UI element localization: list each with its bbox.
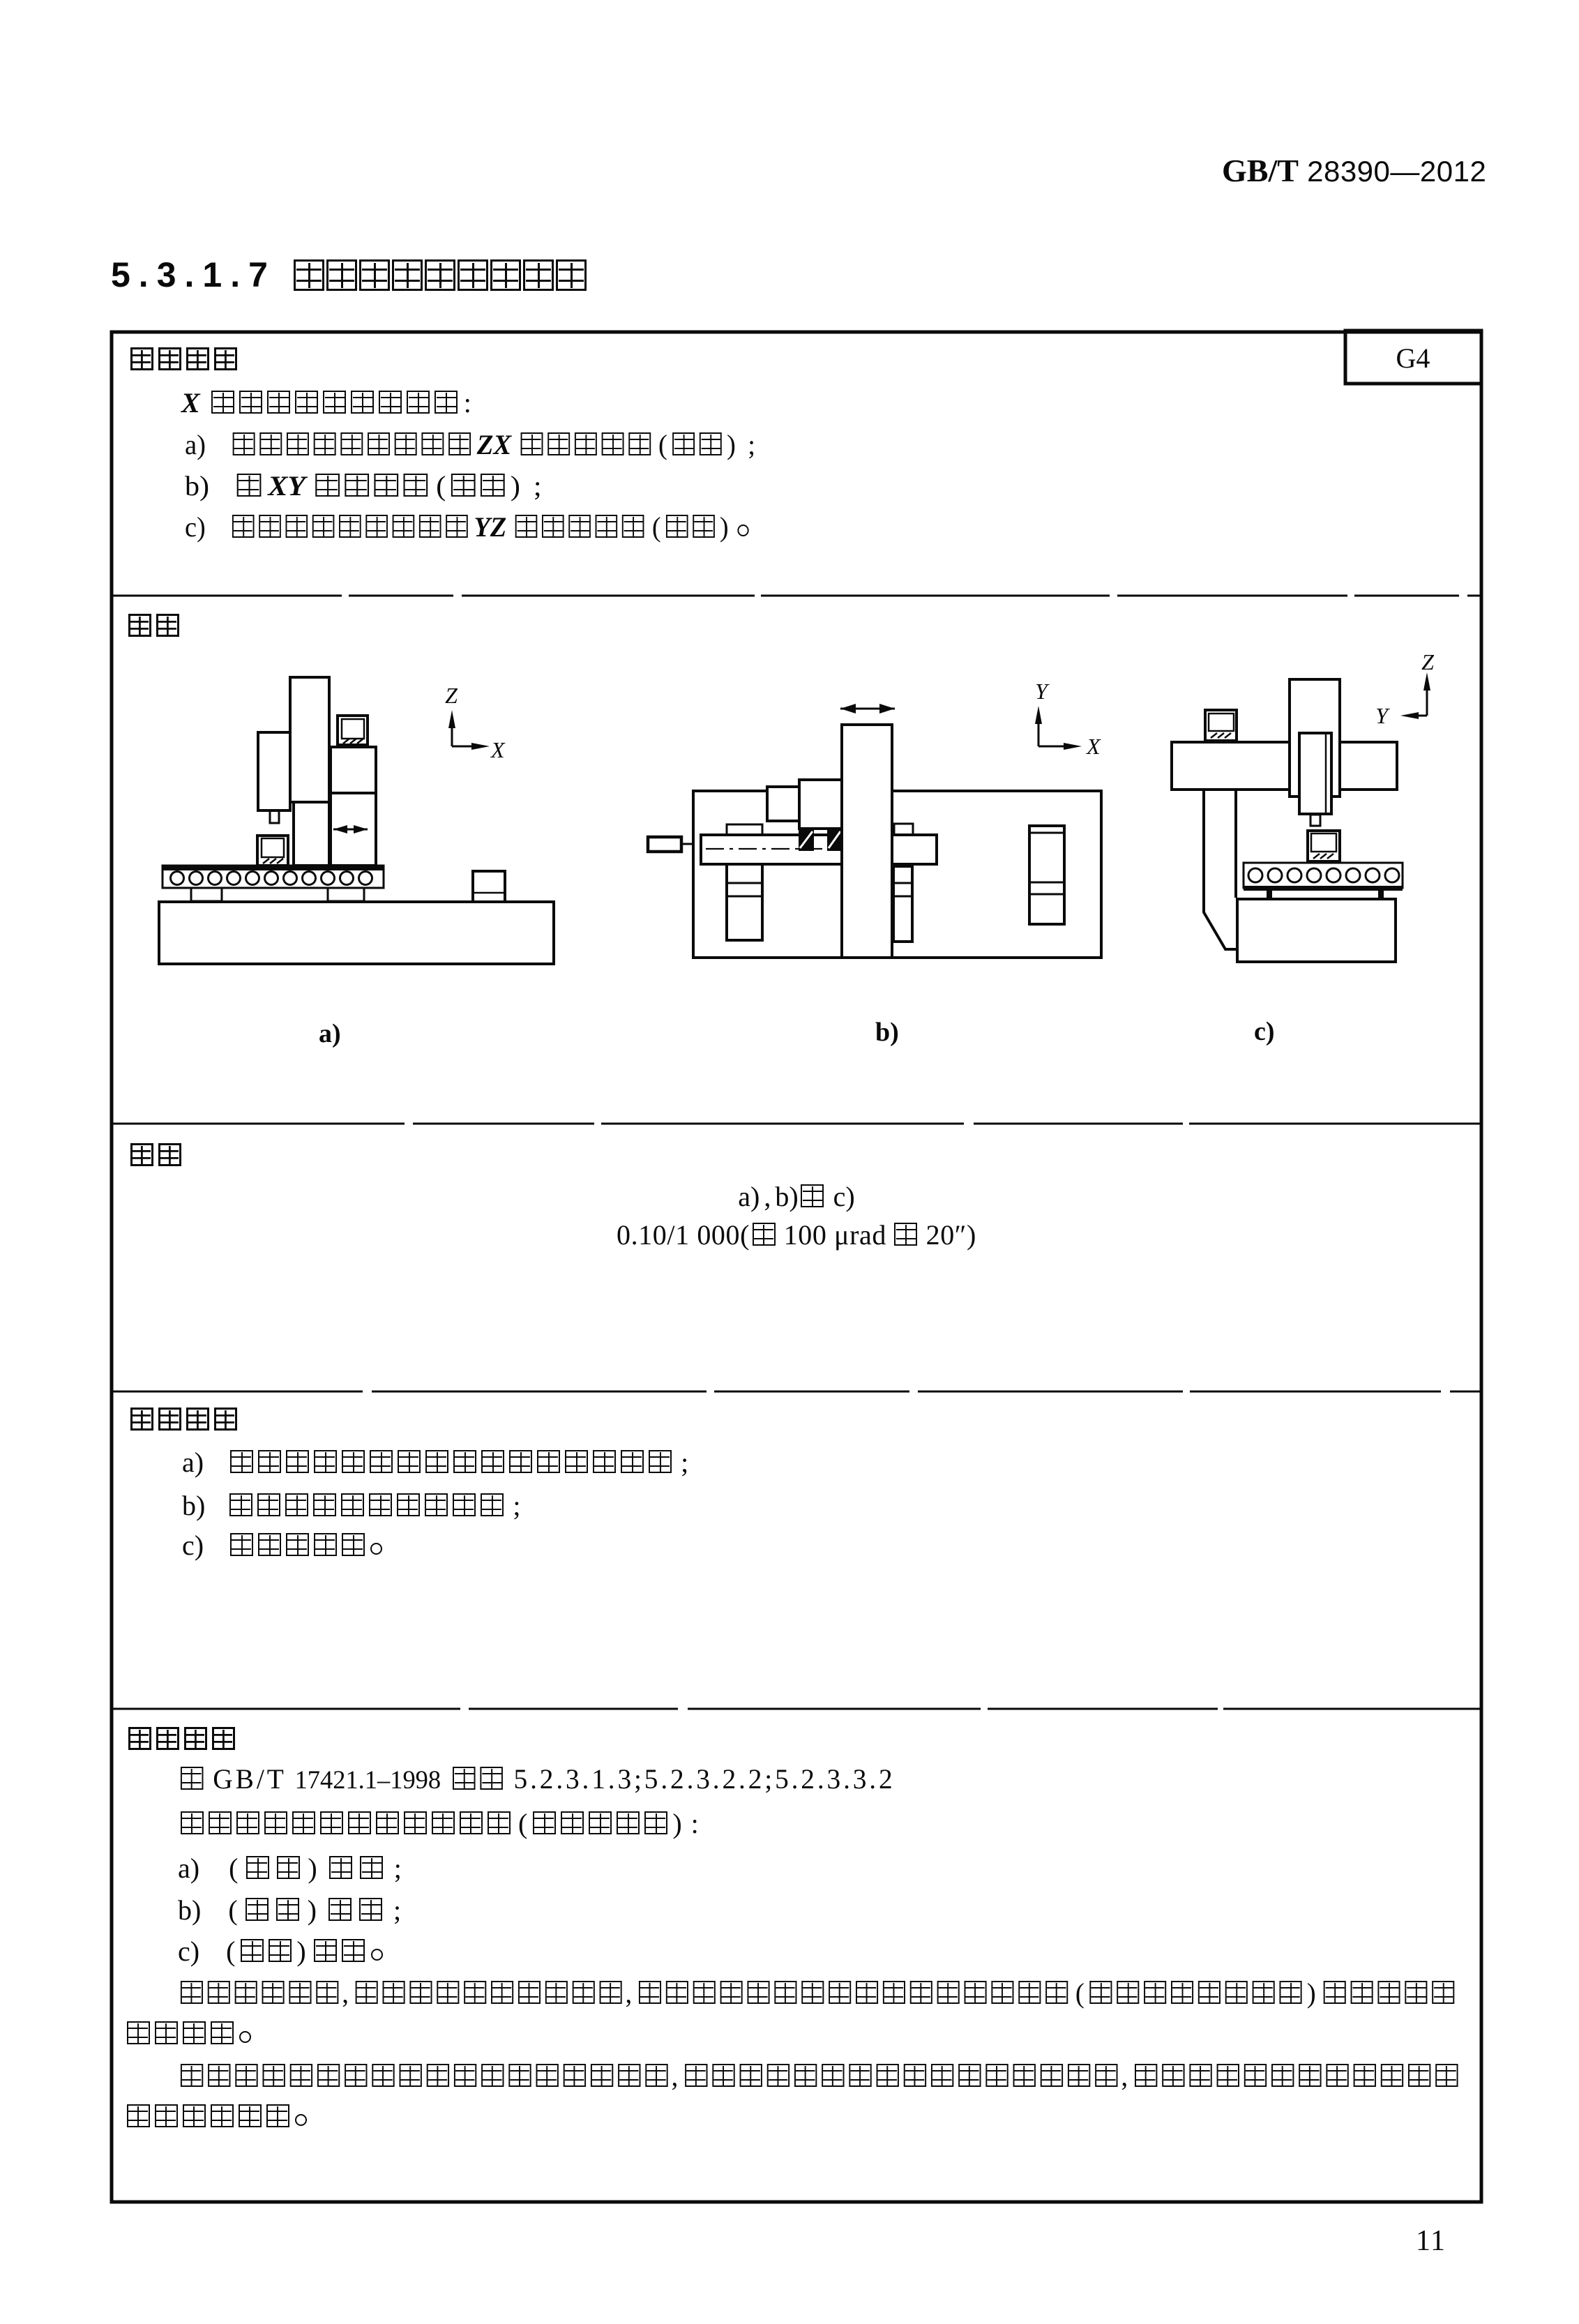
svg-text:Y: Y [1375,703,1390,728]
svg-text:Y: Y [1035,679,1050,704]
svg-text:X: X [490,737,506,762]
svg-text:X: X [1085,734,1101,759]
svg-text:Z: Z [445,683,458,708]
svg-text:Z: Z [1421,649,1435,674]
svg-text:G4: G4 [1396,342,1430,374]
